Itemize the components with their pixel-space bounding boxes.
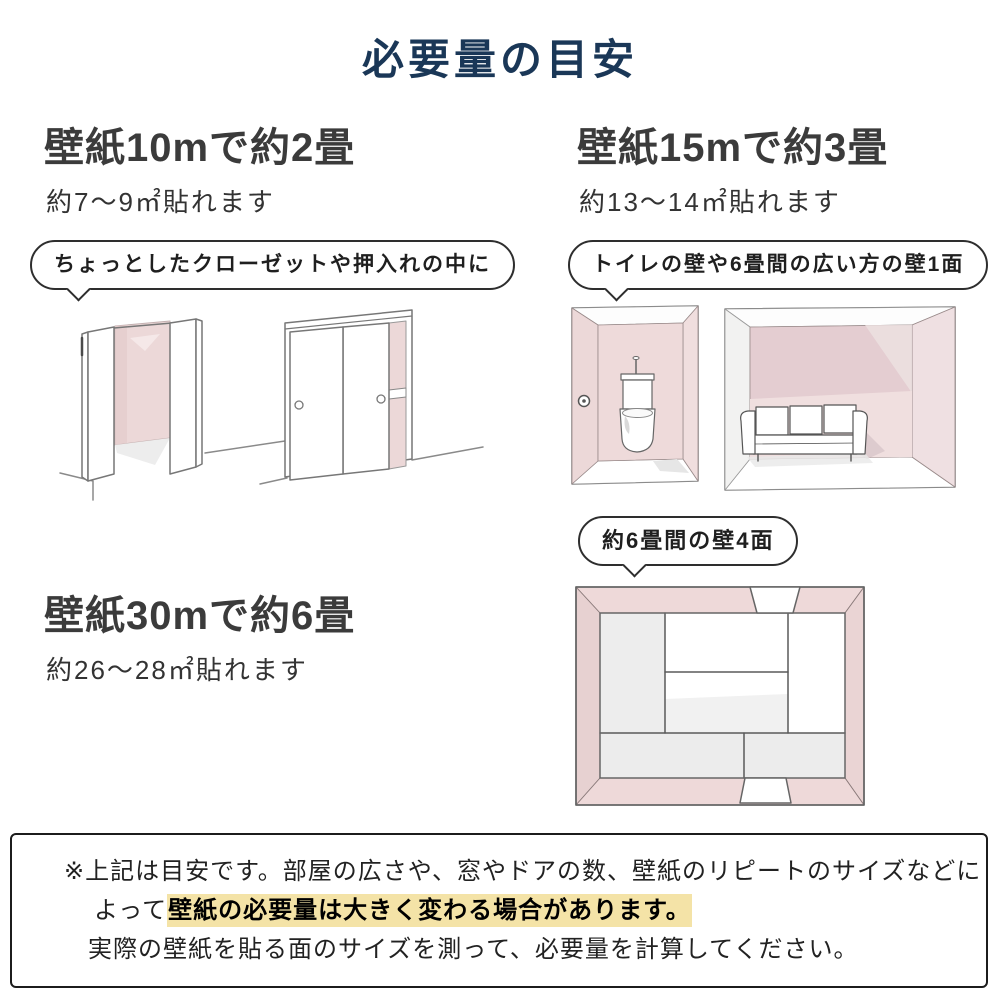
note-line-2-prefix: よって <box>94 897 167 924</box>
subheading-10m: 約7〜9㎡貼れます <box>46 182 275 219</box>
open-closet-illustration <box>60 319 285 500</box>
wallpaper-quantity-guide: 必要量の目安 壁紙10mで約2畳 約7〜9㎡貼れます ちょっとしたクローゼットや… <box>0 0 1000 1000</box>
toilet-room-illustration <box>572 306 698 484</box>
toilet-paper-icon <box>579 396 590 407</box>
speech-bubble-tail <box>604 277 628 301</box>
speech-bubble-6mat: 約6畳間の壁4面 <box>578 516 798 566</box>
heading-15m: 壁紙15mで約3畳 <box>577 126 888 170</box>
sofa-room-illustration <box>725 307 955 490</box>
door-top <box>750 587 800 613</box>
heading-10m: 壁紙10mで約2畳 <box>44 126 355 170</box>
speech-bubble-6mat-label: 約6畳間の壁4面 <box>602 528 774 553</box>
subheading-15m: 約13〜14㎡貼れます <box>579 182 841 219</box>
tatami-room-top-view-illustration <box>572 581 872 811</box>
note-line-3: 実際の壁紙を貼る面のサイズを測って、必要量を計算してください。 <box>88 930 966 969</box>
subheading-30m: 約26〜28㎡貼れます <box>46 650 308 687</box>
sofa-icon <box>741 405 868 461</box>
page-title: 必要量の目安 <box>0 26 1000 87</box>
note-line-1: ※上記は目安です。部屋の広さや、窓やドアの数、壁紙のリピートのサイズなどに <box>64 852 966 891</box>
note-box: ※上記は目安です。部屋の広さや、窓やドアの数、壁紙のリピートのサイズなどに よっ… <box>10 833 988 988</box>
speech-bubble-10m-label: ちょっとしたクローゼットや押入れの中に <box>54 253 491 276</box>
note-highlight: 壁紙の必要量は大きく変わる場合があります。 <box>167 894 692 927</box>
note-line-2: よって壁紙の必要量は大きく変わる場合があります。 <box>94 891 966 930</box>
speech-bubble-15m-label: トイレの壁や6畳間の広い方の壁1面 <box>592 253 964 276</box>
speech-bubble-tail <box>622 553 646 577</box>
speech-bubble-10m: ちょっとしたクローゼットや押入れの中に <box>30 240 515 290</box>
door-bottom <box>740 778 791 803</box>
speech-bubble-15m: トイレの壁や6畳間の広い方の壁1面 <box>568 240 988 290</box>
closet-illustrations <box>35 293 505 505</box>
room-wall-illustrations <box>565 301 985 511</box>
heading-30m: 壁紙30mで約6畳 <box>44 594 355 638</box>
sliding-door-closet-illustration <box>260 310 483 484</box>
